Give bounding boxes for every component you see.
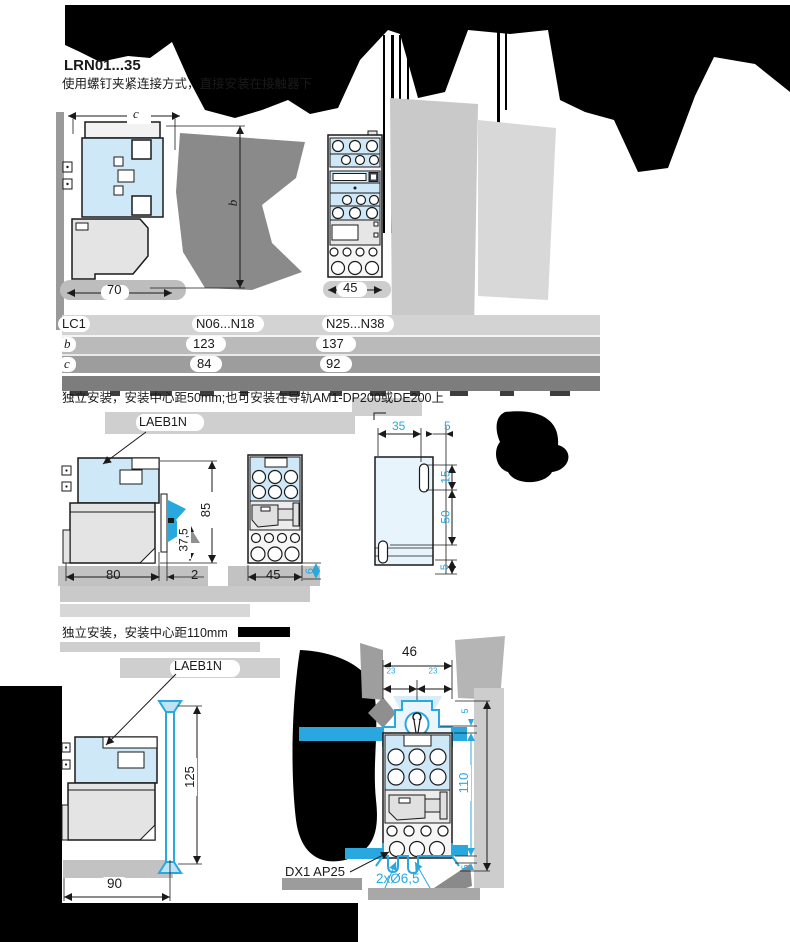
table-c-84: 84	[197, 357, 211, 371]
dim-5-bottom-edge: 5	[461, 864, 471, 869]
top-side-view	[63, 122, 163, 279]
dim-125: 125	[183, 766, 197, 788]
dim-c-label: c	[133, 107, 139, 121]
dim-6: 6	[304, 568, 316, 574]
diagram-linework	[0, 0, 790, 942]
table-col-n06: N06...N18	[196, 317, 255, 331]
dim-45-top: 45	[343, 281, 357, 295]
dim-90: 90	[107, 877, 122, 892]
table-col-n25: N25...N38	[326, 317, 385, 331]
table-b-137: 137	[322, 337, 344, 351]
plate-label-dx1ap25: DX1 AP25	[285, 865, 345, 879]
dim-45-mid: 45	[266, 568, 280, 582]
dim-110: 110	[457, 773, 471, 794]
mid-front-view	[248, 455, 302, 563]
part-label-laeb1n-bottom: LAEB1N	[174, 660, 222, 674]
top-front-view	[328, 131, 382, 277]
dim-5-plate-top: 5	[444, 420, 451, 433]
dim-50: 50	[439, 510, 452, 523]
dim-46: 46	[402, 645, 417, 660]
datasheet-page: LRN01...35 使用螺钉夹紧连接方式，直接安装在接触器下 c b 70 4…	[0, 0, 790, 942]
dim-70: 70	[107, 283, 121, 297]
part-label-laeb1n-mid: LAEB1N	[139, 416, 187, 430]
table-row-c-label: c	[64, 357, 70, 371]
table-col-lc1: LC1	[62, 317, 86, 331]
dim-80: 80	[106, 568, 120, 582]
table-row-b-label: b	[64, 337, 71, 351]
bottom-side-view	[62, 700, 184, 874]
page-subtitle: 使用螺钉夹紧连接方式，直接安装在接触器下	[62, 78, 312, 92]
dim-37-5: 37,5	[177, 528, 190, 551]
table-c-92: 92	[326, 357, 340, 371]
dim-5-top-edge: 5	[461, 708, 471, 713]
page-title: LRN01...35	[64, 58, 141, 75]
dim-35: 35	[392, 420, 405, 433]
section-50mm-heading: 独立安装，安装中心距50mm;也可安装在导轨AM1-DP200或DE200上	[62, 392, 444, 406]
holes-label-2xd65: 2xØ6,5	[376, 872, 420, 887]
dim-2: 2	[191, 568, 198, 582]
mid-mounting-plate	[374, 413, 446, 574]
dim-23-left: 23	[387, 668, 396, 677]
dim-15: 15	[439, 470, 452, 483]
dim-85: 85	[199, 503, 213, 517]
dim-23-right: 23	[429, 668, 438, 677]
section-110mm-heading: 独立安装，安装中心距110mm	[62, 627, 228, 641]
dim-5-plate-right: 5	[439, 564, 451, 570]
dim-b-label: b	[226, 200, 240, 207]
table-b-123: 123	[193, 337, 215, 351]
